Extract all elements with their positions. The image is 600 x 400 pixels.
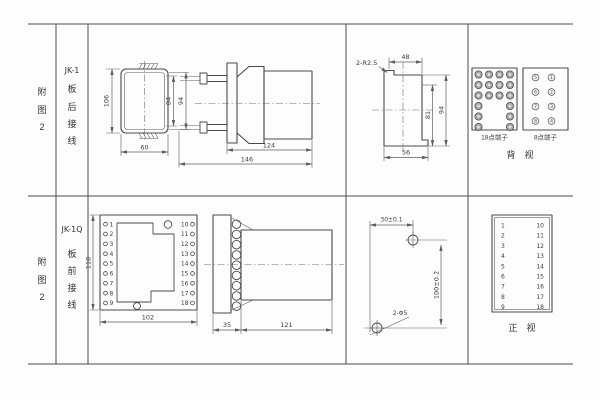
terminal-bump <box>232 220 241 229</box>
terminal-dot-center <box>509 115 512 118</box>
jk1-front-view: 106 84 94 60 <box>103 61 190 156</box>
manual-page: 附 图 2 JK-1 板 后 接 线 106 84 94 60 <box>0 0 600 400</box>
terminal-dot-center <box>498 94 501 97</box>
terminal-bump <box>232 271 241 280</box>
terminal-dot-center <box>477 126 480 129</box>
wiring-char: 后 <box>67 102 76 112</box>
terminal-circle <box>104 281 108 285</box>
terminal-bump <box>232 281 241 290</box>
dim-124: 124 <box>263 142 275 150</box>
table-number: 3 <box>501 243 505 250</box>
front-view-label: 正 视 <box>508 322 535 333</box>
side-terminal-bumps <box>232 220 241 311</box>
terminal-number: 3 <box>110 241 114 248</box>
terminal-bump <box>232 261 241 270</box>
dim-84: 84 <box>165 97 173 105</box>
terminal-dot-center <box>498 84 501 87</box>
dim-121: 121 <box>280 321 292 329</box>
terminal-number: 2 <box>110 231 114 238</box>
terminal-circle-number: 1 <box>550 75 553 81</box>
terminal-number: 11 <box>181 231 189 238</box>
table-number: 14 <box>536 263 544 270</box>
terminal-number: 4 <box>110 251 114 258</box>
jk1-side-view: 124 146 <box>179 63 320 168</box>
terminal-circle <box>104 232 108 236</box>
terminal-circle <box>191 222 195 226</box>
terminal-circle-number: 4 <box>550 119 553 125</box>
terminal-circle <box>191 252 195 256</box>
table-number: 6 <box>501 274 505 281</box>
terminal-dot-center <box>488 84 491 87</box>
terminal-dot-center <box>477 94 480 97</box>
terminal-circle <box>104 272 108 276</box>
terminal-number: 8 <box>110 290 114 297</box>
wiring-char: 前 <box>67 265 76 276</box>
dim-102: 102 <box>142 314 154 322</box>
figure-char: 2 <box>39 122 44 132</box>
terminal-circle-number: 6 <box>534 90 537 96</box>
rear-view-label: 背 视 <box>506 149 533 160</box>
dim-100: 100±0.2 <box>433 271 441 299</box>
terminal-circle <box>104 222 108 226</box>
terminal-block-8-label: 8点端子 <box>534 133 558 142</box>
terminal-circle <box>191 262 195 266</box>
wiring-char: 接 <box>67 118 76 129</box>
terminal-dot-center <box>509 94 512 97</box>
terminal-circle-number: 7 <box>534 104 537 110</box>
figure-char: 2 <box>39 292 44 302</box>
terminal-number: 18 <box>181 300 189 307</box>
jk1q-drill-plan: 30±0.1 100±0.2 2-Φ5 <box>364 217 447 337</box>
terminal-circle <box>104 252 108 256</box>
table-number: 11 <box>536 233 544 240</box>
terminal-circle <box>191 301 195 305</box>
wiring-char: 板 <box>67 248 76 259</box>
terminal-number: 13 <box>181 251 189 258</box>
terminal-circle <box>191 281 195 285</box>
corner-radius-note: 2-R2.5 <box>356 59 377 67</box>
wiring-char: 板 <box>67 83 76 94</box>
table-number: 7 <box>501 284 505 291</box>
table-number: 12 <box>536 243 544 250</box>
terminal-circle-number: 3 <box>550 104 553 110</box>
jk1q-front-view: 110211312413514615716817918 118 102 <box>85 215 198 326</box>
row1-model-label: JK-1 板 后 接 线 <box>64 66 80 146</box>
terminal-bump <box>232 292 241 301</box>
terminal-number: 12 <box>181 241 189 248</box>
hole-diameter-note: 2-Φ5 <box>393 310 408 317</box>
table-number: 15 <box>536 274 544 281</box>
table-number: 2 <box>501 233 505 240</box>
wiring-char: 线 <box>67 135 76 146</box>
terminal-bump <box>232 240 241 249</box>
terminal-circle <box>191 272 195 276</box>
model-name: JK-1 <box>64 66 80 75</box>
terminal-number: 7 <box>110 280 114 287</box>
terminal-number: 6 <box>110 271 114 278</box>
dim-35: 35 <box>223 321 231 329</box>
dim-81: 81 <box>424 111 432 119</box>
terminal-table-numbers: 110211312413514615716817918 <box>501 223 544 312</box>
dim-56: 56 <box>402 149 410 157</box>
terminal-number: 10 <box>181 221 189 228</box>
terminal-number: 17 <box>181 290 189 297</box>
dim-60: 60 <box>140 144 148 152</box>
terminal-circle <box>191 242 195 246</box>
jk1q-terminal-table: 110211312413514615716817918 正 视 <box>492 215 552 333</box>
dim-30: 30±0.1 <box>380 217 402 224</box>
table-number: 5 <box>501 263 505 270</box>
row2-figure-label: 附 图 2 <box>37 256 46 302</box>
terminal-circle-number: 8 <box>534 119 537 125</box>
table-number: 8 <box>501 294 505 301</box>
dim-146: 146 <box>241 156 253 164</box>
terminal-circle <box>104 291 108 295</box>
terminal-number: 16 <box>181 280 189 287</box>
table-number: 16 <box>536 284 544 291</box>
dimension-drawing-sheet: 附 图 2 JK-1 板 后 接 线 106 84 94 60 <box>0 0 600 400</box>
terminal-block-18-label: 18点端子 <box>481 133 508 142</box>
terminal-bump <box>232 230 241 239</box>
dim-48: 48 <box>401 53 409 61</box>
terminal-number: 9 <box>110 300 114 307</box>
terminal-dot-center <box>488 94 491 97</box>
figure-char: 图 <box>37 275 46 285</box>
terminal-dot-center <box>498 73 501 76</box>
terminal-circle <box>104 301 108 305</box>
terminal-number: 15 <box>181 271 189 278</box>
row1-figure-label: 附 图 2 <box>37 86 46 132</box>
terminal-circle-number: 2 <box>550 90 553 96</box>
table-number: 10 <box>536 223 544 230</box>
jk1q-side-view: 35 121 <box>204 215 344 334</box>
terminal-dot-center <box>477 84 480 87</box>
dim-94-cutout: 94 <box>438 106 446 114</box>
wiring-char: 线 <box>67 299 76 310</box>
terminal-dot-center <box>509 105 512 108</box>
terminal-number: 5 <box>110 261 114 268</box>
table-number: 17 <box>536 294 544 301</box>
dim-106: 106 <box>103 95 111 107</box>
table-number: 18 <box>536 304 544 311</box>
dim-94: 94 <box>177 97 185 105</box>
terminal-circle <box>191 232 195 236</box>
terminal-dot-center <box>509 73 512 76</box>
table-number: 9 <box>501 304 505 311</box>
terminal-dot-center <box>477 105 480 108</box>
row2-model-label: JK-1Q 板 前 接 线 <box>60 225 82 310</box>
table-number: 13 <box>536 253 544 260</box>
terminal-circle <box>104 242 108 246</box>
jk1-rear-terminals: 18点端子 56781234 8点端子 背 视 <box>472 68 568 160</box>
terminal-number: 14 <box>181 261 189 268</box>
terminal-dot-center <box>477 73 480 76</box>
terminal-block-8: 56781234 <box>532 74 555 125</box>
model-name: JK-1Q <box>60 225 82 234</box>
terminal-bump <box>232 251 241 260</box>
terminal-circle-number: 5 <box>534 75 537 81</box>
terminal-dot-center <box>488 73 491 76</box>
terminal-circle <box>191 291 195 295</box>
table-number: 1 <box>501 223 505 230</box>
terminal-dot-center <box>509 126 512 129</box>
jk1-panel-cutout: 48 2-R2.5 81 94 56 <box>356 53 450 161</box>
terminal-dot-center <box>509 84 512 87</box>
table-number: 4 <box>501 253 505 260</box>
terminal-dot-center <box>477 115 480 118</box>
figure-char: 图 <box>37 105 46 115</box>
terminal-block-18 <box>475 71 514 131</box>
figure-char: 附 <box>37 86 46 97</box>
dim-118: 118 <box>85 257 93 269</box>
figure-char: 附 <box>37 256 46 267</box>
wiring-char: 接 <box>67 282 76 293</box>
terminal-number: 1 <box>110 221 114 228</box>
terminal-circle <box>104 262 108 266</box>
